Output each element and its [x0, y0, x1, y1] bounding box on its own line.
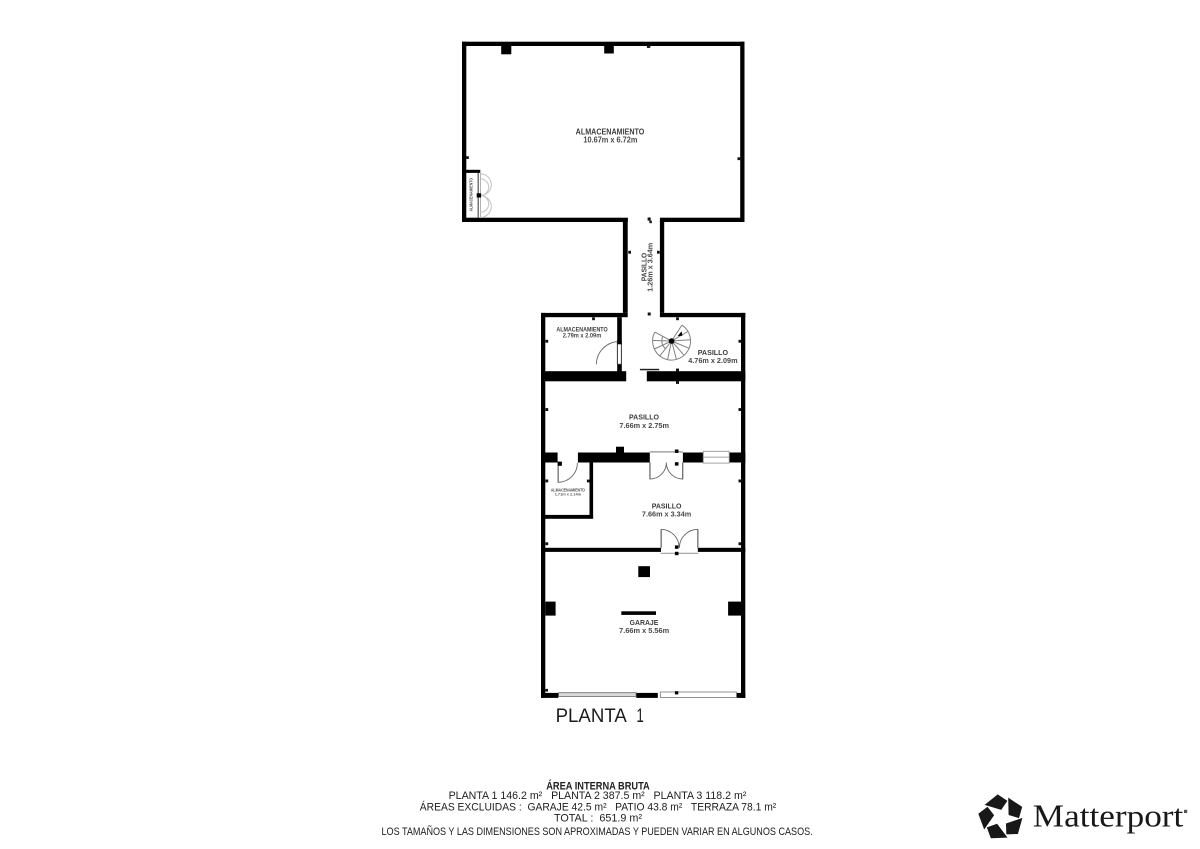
svg-text:1: 1 — [636, 705, 644, 727]
svg-text:GARAJE: GARAJE — [630, 618, 659, 627]
svg-text:1.26m x 3.64m: 1.26m x 3.64m — [647, 243, 655, 292]
svg-text:LOS TAMAÑOS Y LAS DIMENSIONES: LOS TAMAÑOS Y LAS DIMENSIONES SON APROXI… — [381, 825, 812, 838]
svg-text:PASILLO: PASILLO — [652, 501, 682, 510]
svg-text:1.71m x 2.14m: 1.71m x 2.14m — [555, 492, 582, 497]
svg-text:TOTAL : 651.9 m²: TOTAL : 651.9 m² — [554, 813, 642, 825]
svg-text:PLANTA: PLANTA — [556, 705, 628, 727]
svg-text:PASILLO: PASILLO — [629, 412, 659, 421]
svg-text:ÁREAS EXCLUIDAS : GARAJE 42.5: ÁREAS EXCLUIDAS : GARAJE 42.5 m² PATIO 4… — [420, 800, 777, 813]
svg-text:7.66m x 2.75m: 7.66m x 2.75m — [619, 422, 669, 430]
svg-text:PLANTA 1 146.2 m² PLANTA 2 3: PLANTA 1 146.2 m² PLANTA 2 387.5 m² PLAN… — [449, 790, 747, 802]
svg-text:ALMACENAMIENTO: ALMACENAMIENTO — [556, 326, 607, 333]
svg-text:Matterport: Matterport — [1033, 798, 1184, 834]
svg-text:7.66m x 5.56m: 7.66m x 5.56m — [619, 627, 669, 635]
svg-text:2.79m x 2.09m: 2.79m x 2.09m — [563, 333, 602, 339]
svg-text:10.67m x 6.72m: 10.67m x 6.72m — [583, 136, 637, 145]
svg-text:7.66m x 3.34m: 7.66m x 3.34m — [642, 511, 691, 519]
svg-text:4.76m x 2.09m: 4.76m x 2.09m — [688, 357, 737, 365]
svg-text:ALMACENAMIENTO: ALMACENAMIENTO — [469, 177, 474, 211]
svg-text:PASILLO: PASILLO — [698, 348, 729, 357]
